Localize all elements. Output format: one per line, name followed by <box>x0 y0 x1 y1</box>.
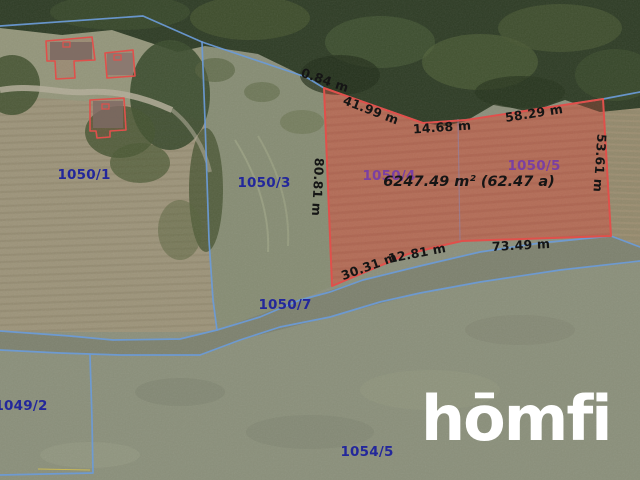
parcel-area-label: 6247.49 m² (62.47 a) <box>383 174 555 190</box>
homfi-logo-watermark: hōmfi <box>421 388 611 450</box>
building-2-outline <box>105 50 135 78</box>
cadastral-map-canvas[interactable]: 1050/11050/31050/41050/51050/71049/21054… <box>0 0 640 480</box>
